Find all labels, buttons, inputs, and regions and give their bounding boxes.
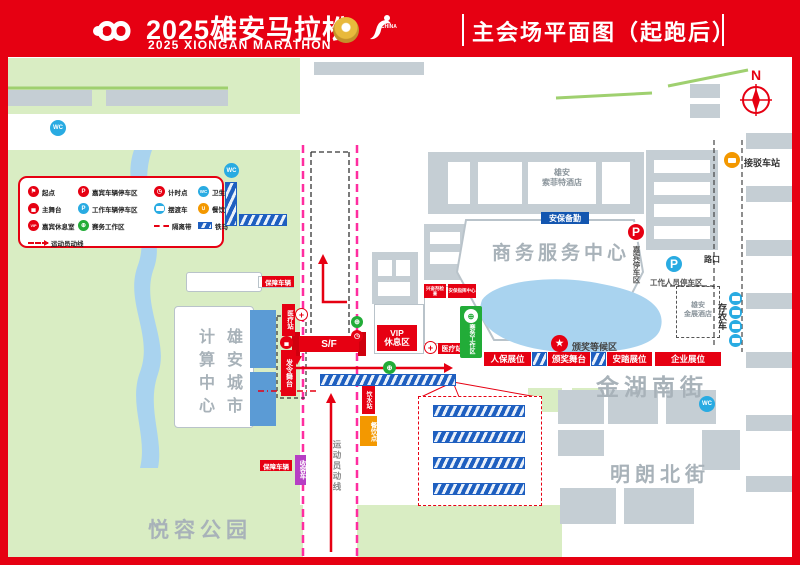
barricade-fence	[433, 405, 525, 417]
legend-item: ◷计时点	[154, 186, 198, 197]
main-stage-icon: ▄	[28, 203, 39, 214]
legend-item: VIP嘉宾休息室	[28, 220, 78, 231]
legend-item: ⊕赛务工作区	[78, 220, 154, 231]
start-finish-arch: S/F	[299, 336, 359, 352]
award-podium-icon: ★	[551, 335, 568, 352]
shuttle-station-label: 接驳车站	[744, 156, 780, 169]
toilet-icon: WC	[224, 163, 239, 178]
building-block	[746, 293, 792, 309]
shuttle-bus-icon	[729, 320, 742, 333]
map-legend: ⚑起点 P嘉宾车辆停车区 ◷计时点 WC卫生间 ▄主舞台 P工作车辆停车区 摆渡…	[18, 176, 224, 248]
medical-cross-icon: +	[424, 341, 437, 354]
legend-item: 摆渡车	[154, 203, 198, 214]
crossing-label: 路口	[704, 254, 720, 265]
guest-parking-label: 嘉宾停车区	[631, 246, 642, 284]
building-block	[424, 224, 468, 280]
building-block	[746, 133, 792, 149]
building-block	[746, 352, 792, 368]
medical-station-label: 医疗站	[282, 304, 295, 336]
building-block	[746, 415, 792, 431]
race-office-icon: ⊕	[464, 309, 478, 323]
sweep-bus-label: 收容车	[295, 455, 306, 485]
road-strip	[106, 90, 228, 106]
building-block	[250, 310, 276, 368]
shuttle-bus-icon	[729, 334, 742, 347]
building-block	[250, 372, 276, 426]
legend-item: ▄主舞台	[28, 203, 78, 214]
start-stage-label: 发令舞台	[281, 350, 296, 396]
support-vehicle-label: 保障车辆	[260, 460, 292, 471]
street-jinhu-south: 金湖南街	[596, 368, 708, 402]
legend-item: P嘉宾车辆停车区	[78, 186, 154, 197]
building-block	[690, 84, 720, 98]
medical-cross-icon: +	[295, 308, 308, 321]
guest-parking-icon: P	[626, 222, 646, 242]
building-block	[646, 150, 718, 250]
barricade-fence	[320, 374, 456, 386]
barricade-fence	[433, 431, 525, 443]
vip-rest-area: VIP 休息区	[377, 325, 417, 351]
road-strip	[314, 62, 424, 75]
legend-item: ∪餐饮点	[198, 203, 228, 214]
shuttle-bus-icon	[154, 203, 165, 214]
barricade-detail-box	[418, 396, 542, 506]
legend-item: 隔离带	[154, 221, 198, 231]
race-office-icon: ⊕	[351, 316, 363, 328]
building-block	[558, 430, 604, 456]
race-office-area: ⊕ 赛务工作区	[460, 306, 482, 358]
race-office-icon: ⊕	[383, 361, 396, 374]
jinzhan-hotel: 雄安 金展酒店	[676, 286, 720, 338]
staff-parking-icon: P	[78, 203, 89, 214]
building-block	[746, 186, 792, 202]
shuttle-bus-icon	[724, 152, 740, 168]
building-block	[690, 104, 720, 118]
race-emblem-badge	[333, 17, 359, 43]
business-center-label: 商务服务中心	[492, 238, 630, 265]
barricade-fence	[591, 352, 606, 366]
barricade-fence	[433, 457, 525, 469]
race-office-icon: ⊕	[78, 220, 89, 231]
title-bar-right	[722, 14, 724, 46]
booth-picc: 人保展位	[484, 352, 531, 366]
legend-item: 运动员动线	[28, 238, 228, 248]
toilet-icon: WC	[50, 120, 66, 136]
computing-center-label-right: 雄安城市	[220, 328, 244, 420]
building-block	[186, 272, 262, 292]
water-station-label: 饮水站	[362, 386, 375, 414]
building-block	[746, 240, 792, 256]
sofitel-hotel-label: 雄安 索菲特酒店	[530, 168, 594, 187]
toilet-icon: WC	[198, 186, 209, 197]
timing-point-icon: ◷	[351, 330, 363, 342]
barricade-icon	[198, 222, 212, 229]
cloak-bus-label: 存衣车	[716, 303, 729, 330]
shuttle-bus-icon	[729, 306, 742, 319]
park-area	[8, 505, 562, 557]
barricade-fence	[239, 214, 287, 226]
vip-lounge-icon: VIP	[28, 220, 39, 231]
street-minglang-north: 明朗北街	[610, 458, 710, 487]
barricade-fence	[532, 352, 547, 366]
staff-parking-icon: P	[664, 254, 684, 274]
booth-enterprise: 企业展位	[655, 352, 721, 366]
building-block	[746, 476, 792, 492]
timing-point-icon: ◷	[154, 186, 165, 197]
marathon-logo	[84, 9, 142, 53]
doping-check-label: 兴奋剂检查	[424, 284, 446, 298]
badge-text: CHINA	[381, 24, 397, 30]
booth-anta: 安踏展位	[607, 352, 652, 366]
road-strip	[8, 90, 92, 106]
legend-item: WC卫生间	[198, 186, 228, 197]
legend-item: 铁马	[198, 221, 228, 231]
staff-parking-label: 工作人员停车区	[650, 277, 703, 288]
food-point-icon: ∪	[198, 203, 209, 214]
athlete-route-icon	[28, 242, 48, 244]
booth-award-stage: 颁奖舞台	[548, 352, 590, 366]
security-standby-label: 安保备勤	[541, 212, 589, 224]
building-block	[560, 488, 616, 524]
computing-center-label-left: 计算中心	[192, 328, 216, 420]
building-block	[624, 488, 694, 524]
main-stage-icon: ▄	[280, 336, 293, 349]
legend-item: P工作车辆停车区	[78, 203, 154, 214]
legend-item: ⚑起点	[28, 186, 78, 197]
divider-line-icon	[154, 225, 169, 227]
start-point-icon: ⚑	[28, 186, 39, 197]
athlete-route-label: 运动员动线	[331, 440, 343, 493]
marathon-venue-map-poster: 2025雄安马拉松 2025 XIONGAN MARATHON CHINA 主会…	[0, 0, 800, 565]
page-title: 主会场平面图（起跑后）	[472, 15, 736, 47]
shuttle-bus-icon	[729, 292, 742, 305]
guest-parking-icon: P	[78, 186, 89, 197]
security-command-label: 安保指挥中心	[448, 284, 476, 298]
barricade-fence	[433, 483, 525, 495]
building-block	[372, 252, 418, 304]
event-title-en: 2025 XIONGAN MARATHON	[148, 38, 332, 52]
support-vehicle-label: 保障车辆	[262, 276, 294, 287]
yuerong-park-label: 悦容公园	[148, 514, 252, 544]
title-bar-left	[462, 14, 464, 46]
barricade-fence	[225, 182, 237, 226]
food-area-label: 餐饮点	[360, 416, 377, 446]
